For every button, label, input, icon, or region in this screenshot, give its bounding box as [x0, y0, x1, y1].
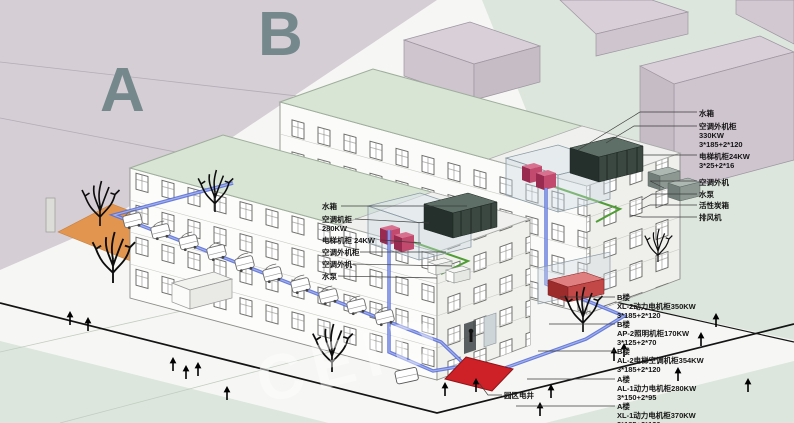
- feeder-name: XL-1动力电机柜370KW: [617, 411, 696, 420]
- feeder-callout-2: B楼 AP-2照明机柜170KW 3*125+2*70: [617, 320, 689, 347]
- callout-roofA-ac-outdoor-unit: 空调外机: [322, 260, 352, 269]
- feeder-callout-4: A楼 AL-1动力电机柜280KW 3*150+2*95: [617, 375, 696, 402]
- feeder-callout-1: B楼 XL-2动力电机柜350KW 3*185+2*120: [617, 293, 696, 320]
- callout-roofA-ac-cabinet: 空调机柜 280KW: [322, 215, 352, 233]
- building-b-letter: B: [258, 4, 303, 66]
- feeder-building: B楼: [617, 347, 704, 356]
- callout-roofB-carbon-box: 活性炭箱: [699, 201, 729, 210]
- callout-roofB-water-tank: 水箱: [699, 109, 714, 118]
- callout-roofB-ac-outdoor-cabinet: 空调外机柜 330KW 3*185+2*120: [699, 122, 743, 149]
- site-diagram: A B CEID 水箱 空调机柜 280KW 电梯机柜 24KW 空调外机柜 空…: [0, 0, 794, 423]
- entrance-glass: [484, 313, 496, 347]
- callout-roofA-water-pump: 水泵: [322, 272, 337, 281]
- callout-roofA-water-tank: 水箱: [322, 202, 337, 211]
- feeder-callout-5: A楼 XL-1动力电机柜370KW 3*185+2*120: [617, 402, 696, 423]
- feeder-spec: 3*185+2*120: [617, 365, 704, 374]
- callout-roofB-water-pump: 水泵: [699, 190, 714, 199]
- callout-roofB-elevator-cabinet: 电梯机柜24KW 3*25+2*16: [699, 152, 750, 170]
- feeder-name: XL-2动力电机柜350KW: [617, 302, 696, 311]
- callout-roofB-ac-outdoor-unit: 空调外机: [699, 178, 729, 187]
- feeder-name: AL-2电梯空调机柜354KW: [617, 356, 704, 365]
- feeder-building: B楼: [617, 293, 696, 302]
- callout-roofA-elevator-cabinet: 电梯机柜 24KW: [322, 236, 375, 245]
- feeder-building: A楼: [617, 375, 696, 384]
- callout-campus-electrical-well: 园区电井: [504, 391, 534, 400]
- feeder-building: B楼: [617, 320, 689, 329]
- feeder-name: AP-2照明机柜170KW: [617, 329, 689, 338]
- gate-pillar: [46, 198, 55, 232]
- callout-roofB-exhaust-fan: 排风机: [699, 213, 722, 222]
- feeder-spec: 3*125+2*70: [617, 338, 689, 347]
- feeder-name: AL-1动力电机柜280KW: [617, 384, 696, 393]
- building-a-letter: A: [100, 60, 145, 122]
- feeder-building: A楼: [617, 402, 696, 411]
- feeder-callout-3: B楼 AL-2电梯空调机柜354KW 3*185+2*120: [617, 347, 704, 374]
- callout-roofA-ac-outdoor-cabinet: 空调外机柜: [322, 248, 360, 257]
- feeder-spec: 3*150+2*95: [617, 393, 696, 402]
- feeder-spec: 3*185+2*120: [617, 311, 696, 320]
